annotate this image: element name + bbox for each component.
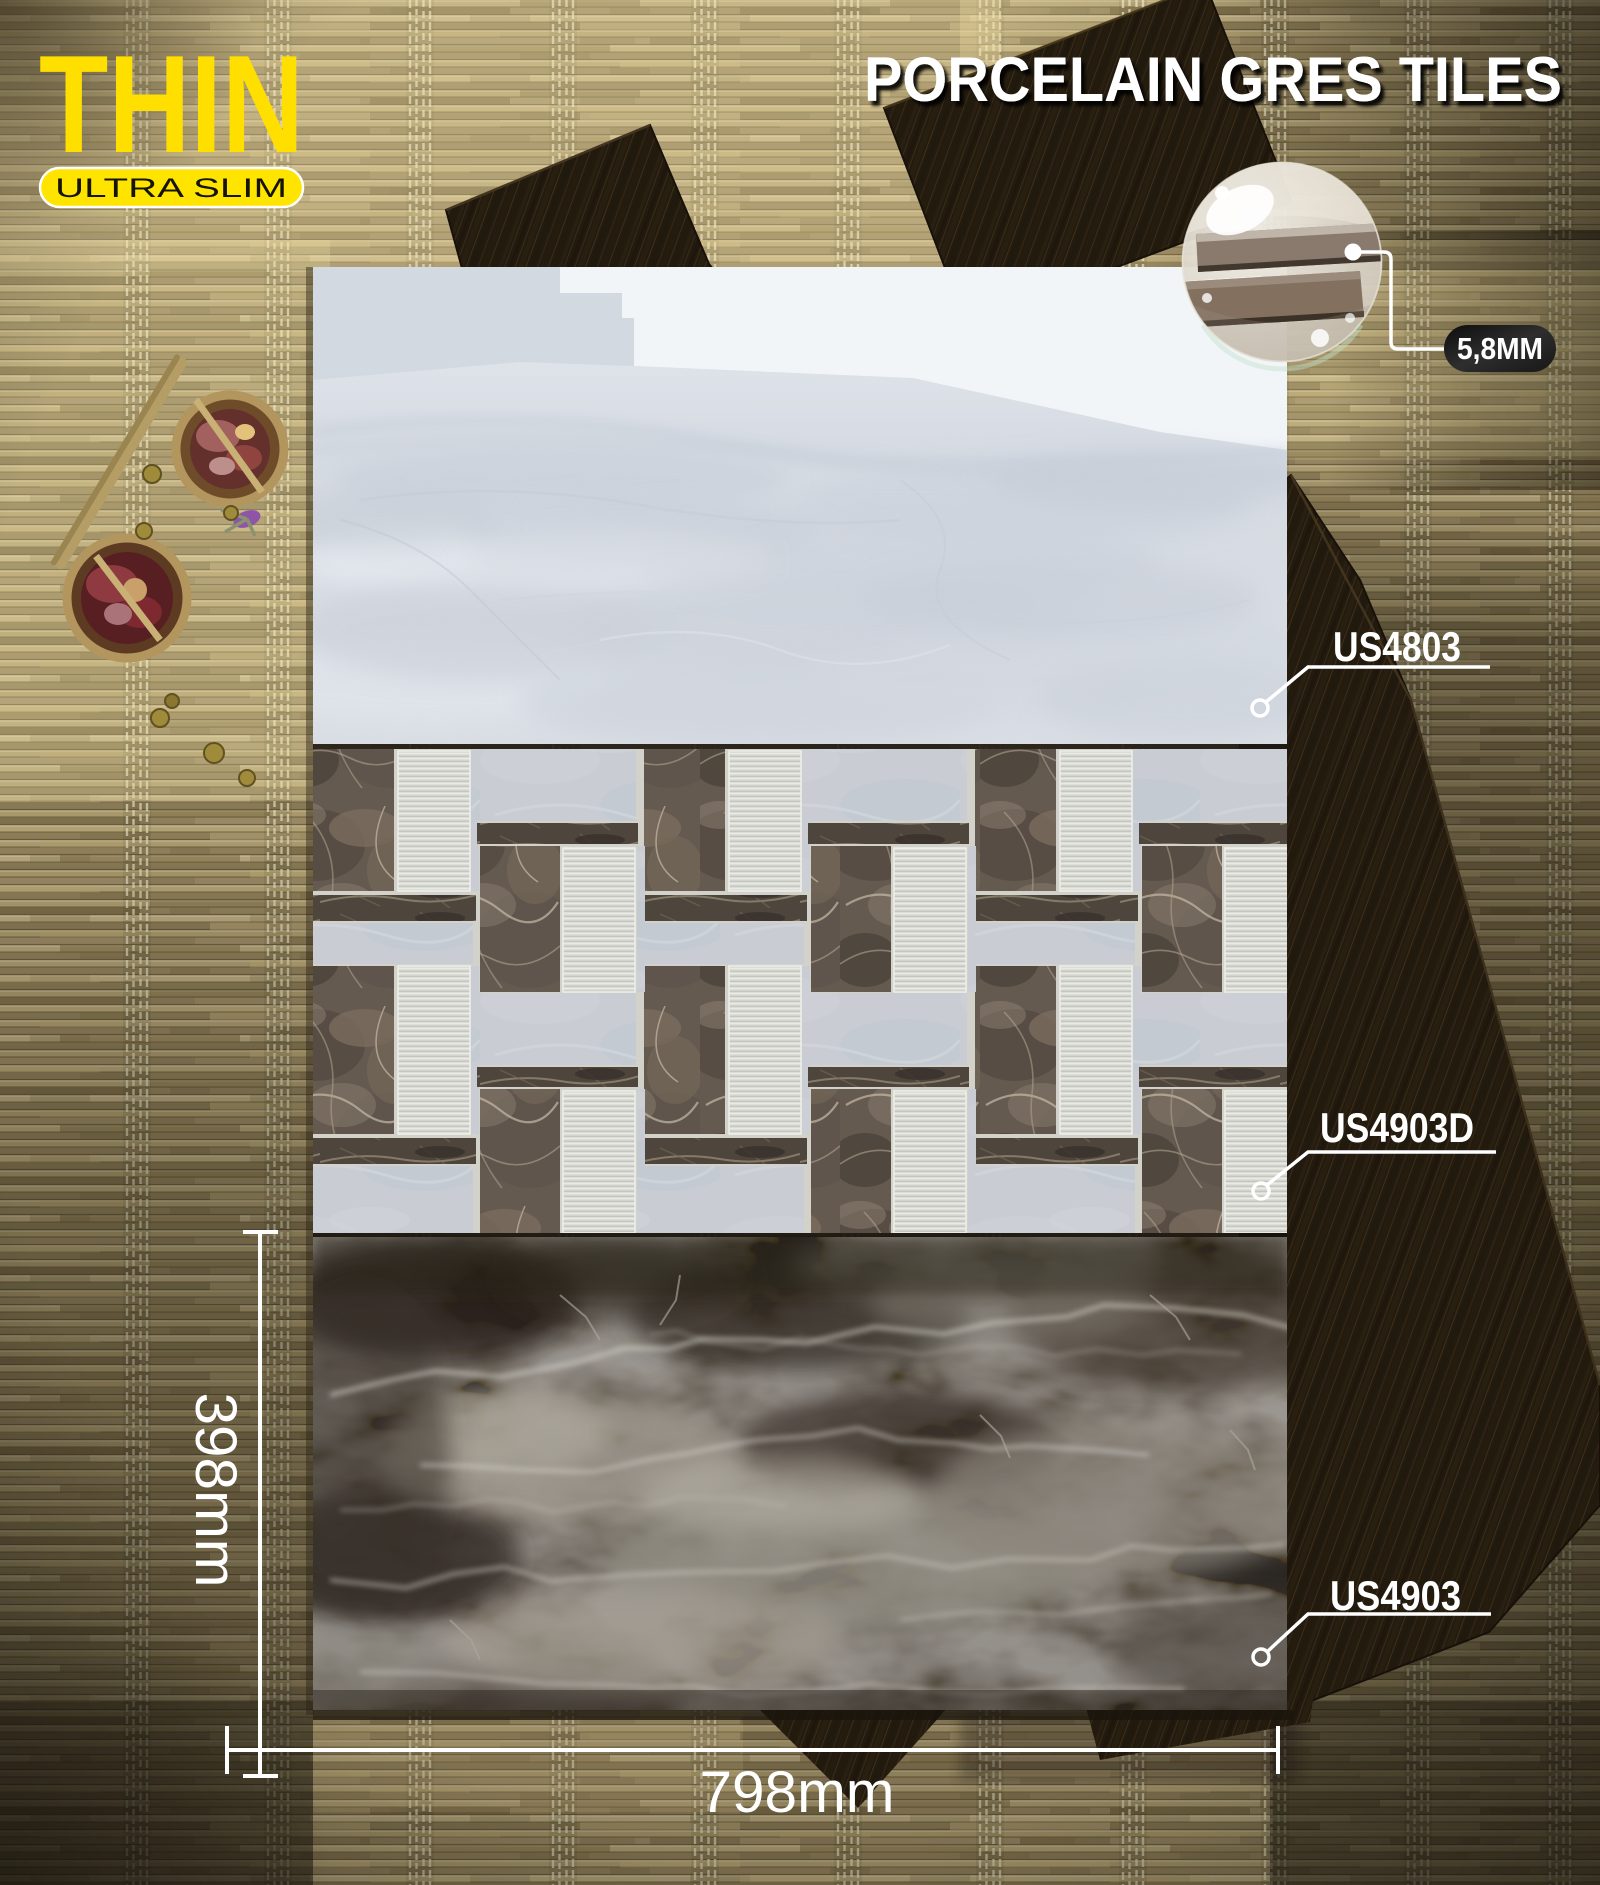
svg-text:398mm: 398mm	[183, 1393, 248, 1588]
svg-text:US4803: US4803	[1333, 623, 1461, 670]
svg-text:US4903: US4903	[1330, 1572, 1461, 1619]
svg-text:798mm: 798mm	[700, 1760, 895, 1825]
svg-text:ULTRA SLIM: ULTRA SLIM	[55, 173, 287, 203]
svg-text:THIN: THIN	[39, 27, 304, 182]
svg-text:5,8MM: 5,8MM	[1457, 331, 1543, 366]
svg-text:PORCELAIN GRES TILES: PORCELAIN GRES TILES	[864, 45, 1562, 115]
svg-text:US4903D: US4903D	[1320, 1104, 1474, 1151]
